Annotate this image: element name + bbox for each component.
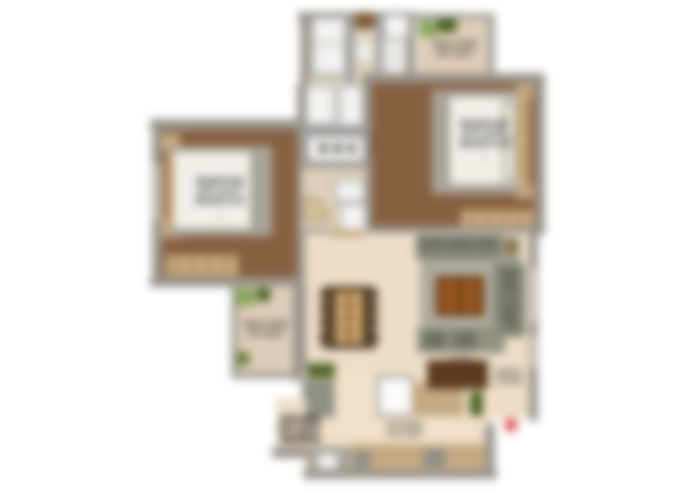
svg-text:11'0"x12'0": 11'0"x12'0" bbox=[460, 129, 507, 139]
svg-text:10'0"x8'0": 10'0"x8'0" bbox=[386, 430, 424, 439]
svg-text:GRANITE: GRANITE bbox=[280, 434, 321, 444]
svg-text:BEDROOM: BEDROOM bbox=[461, 119, 508, 129]
svg-text:5'0"x8'0": 5'0"x8'0" bbox=[248, 329, 286, 339]
svg-text:WOOD FLR: WOOD FLR bbox=[196, 196, 245, 206]
svg-text:KITCHEN: KITCHEN bbox=[281, 414, 321, 424]
svg-text:ENTRY: ENTRY bbox=[496, 368, 523, 377]
svg-text:BALCONY: BALCONY bbox=[434, 39, 479, 49]
svg-text:FOYER: FOYER bbox=[495, 377, 523, 386]
svg-text:___: ___ bbox=[213, 210, 226, 217]
svg-text:10'6"x11'0": 10'6"x11'0" bbox=[196, 186, 243, 196]
svg-text:___: ___ bbox=[477, 153, 490, 160]
svg-text:BALCONY: BALCONY bbox=[245, 319, 290, 329]
svg-text:KITCHEN: KITCHEN bbox=[387, 421, 423, 430]
svg-text:8'0"x10'0": 8'0"x10'0" bbox=[279, 424, 322, 434]
svg-text:WOOD FLR: WOOD FLR bbox=[460, 139, 509, 149]
svg-text:BEDROOM: BEDROOM bbox=[197, 176, 244, 186]
svg-text:6'0"x4'0": 6'0"x4'0" bbox=[437, 49, 475, 59]
